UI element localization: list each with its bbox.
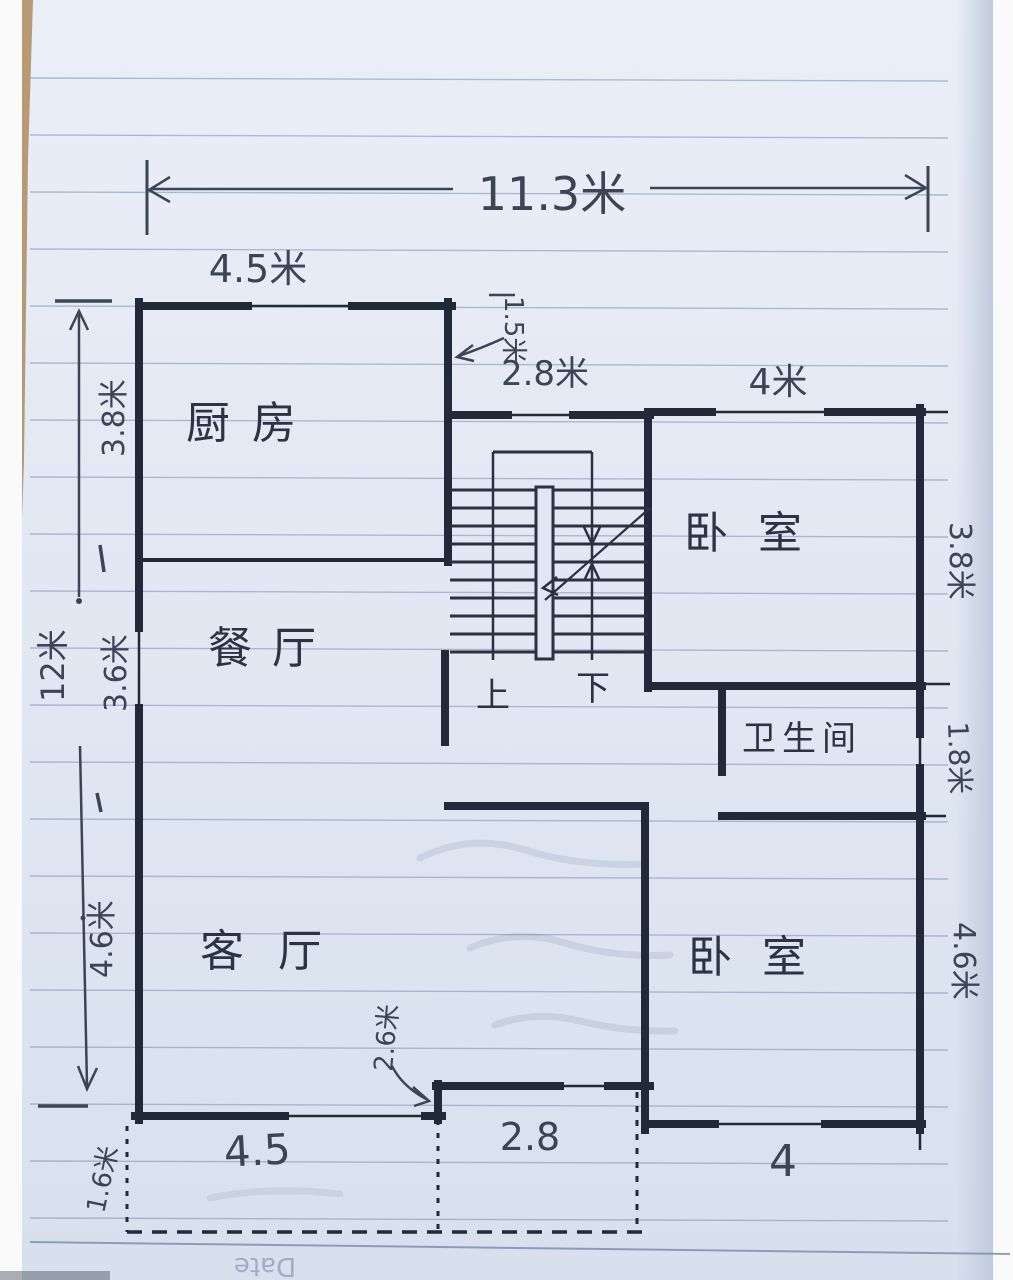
stair-up-label: 上 xyxy=(476,676,510,716)
room-label-bedroom-bottom: 卧室 xyxy=(688,932,836,983)
dim-total-width: 11.3米 xyxy=(478,167,626,221)
stair-center-stringer xyxy=(536,487,553,659)
dim-bathroom-depth: 1.8米 xyxy=(941,721,977,795)
dim-entry-step-width: 2.6米 xyxy=(369,1003,405,1073)
dim-bottom-living-width: 4.5 xyxy=(223,1124,292,1176)
bottom-shadow xyxy=(0,1271,110,1280)
dim-bedroom-top-width: 4米 xyxy=(749,362,808,403)
room-label-dining: 餐厅 xyxy=(208,623,336,674)
dim-bedroom-bottom-depth: 4.6米 xyxy=(946,922,981,1000)
dim-stair-landing: 1.5米 xyxy=(498,296,528,363)
stair-down-label: 下 xyxy=(576,669,610,709)
dim-bottom-bedroom-width: 4 xyxy=(769,1136,797,1187)
dim-bedroom-top-depth: 3.8米 xyxy=(942,522,977,600)
notebook-photo: 上 下 厨房 餐厅 客厅 卧室 卧室 卫生间 11.3米 4.5米 2.8米 4… xyxy=(0,0,1013,1280)
room-label-kitchen: 厨房 xyxy=(186,398,318,449)
left-dim-dot-upper xyxy=(76,598,82,604)
room-label-living: 客厅 xyxy=(200,926,356,977)
paper-right-edge-shade xyxy=(955,0,993,1280)
dim-kitchen-depth: 3.8米 xyxy=(97,379,132,457)
dim-living-depth: 4.6米 xyxy=(85,900,120,978)
dim-kitchen-width: 4.5米 xyxy=(209,247,307,291)
room-label-bedroom-top: 卧室 xyxy=(684,508,832,559)
date-watermark: Date xyxy=(234,1251,296,1280)
dim-dining-depth: 3.6米 xyxy=(99,634,134,712)
room-label-bathroom: 卫生间 xyxy=(742,719,862,759)
dim-bottom-porch-width: 2.8 xyxy=(500,1115,560,1159)
dim-total-depth: 12米 xyxy=(34,629,72,702)
